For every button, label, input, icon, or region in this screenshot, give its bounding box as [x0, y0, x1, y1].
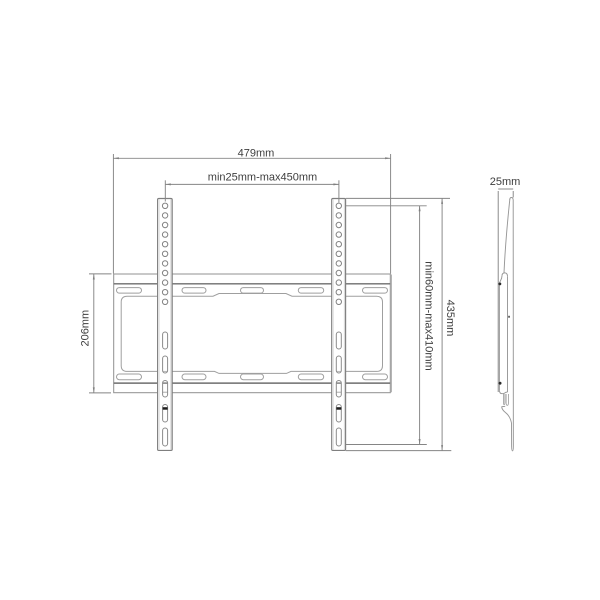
svg-text:min25mm-max450mm: min25mm-max450mm — [208, 172, 317, 184]
svg-text:479mm: 479mm — [238, 148, 275, 160]
svg-text:25mm: 25mm — [490, 176, 521, 188]
svg-text:435mm: 435mm — [444, 300, 456, 337]
svg-text:min60mm-max410mm: min60mm-max410mm — [422, 261, 434, 370]
svg-text:206mm: 206mm — [80, 310, 92, 347]
